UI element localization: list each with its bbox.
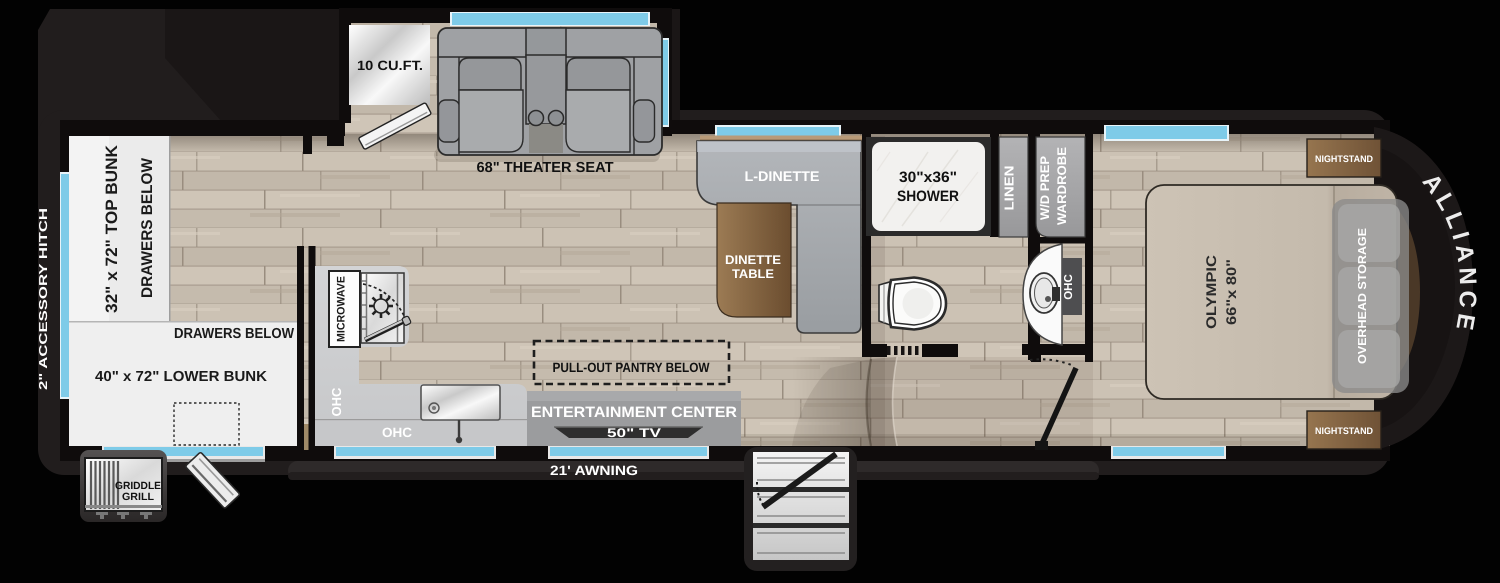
- svg-text:L-DINETTE: L-DINETTE: [745, 168, 820, 184]
- svg-text:40" x 72" LOWER BUNK: 40" x 72" LOWER BUNK: [95, 369, 268, 385]
- svg-text:21' AWNING: 21' AWNING: [550, 463, 638, 478]
- svg-text:LINEN: LINEN: [1002, 166, 1017, 211]
- svg-text:DRAWERS BELOW: DRAWERS BELOW: [174, 326, 294, 342]
- svg-text:NIGHTSTAND: NIGHTSTAND: [1315, 154, 1373, 165]
- svg-text:NIGHTSTAND: NIGHTSTAND: [1315, 426, 1373, 437]
- svg-text:WARDROBE: WARDROBE: [1055, 147, 1069, 225]
- svg-text:OVERHEAD STORAGE: OVERHEAD STORAGE: [1357, 228, 1369, 364]
- svg-text:ENTERTAINMENT CENTER: ENTERTAINMENT CENTER: [531, 404, 737, 421]
- svg-text:DRAWERS BELOW: DRAWERS BELOW: [139, 158, 156, 298]
- svg-text:PULL-OUT PANTRY BELOW: PULL-OUT PANTRY BELOW: [553, 360, 710, 375]
- svg-text:DINETTE: DINETTE: [725, 253, 781, 267]
- svg-text:2" ACCESSORY HITCH: 2" ACCESSORY HITCH: [38, 208, 50, 390]
- svg-text:10 CU.FT.: 10 CU.FT.: [357, 58, 423, 73]
- svg-text:32" x 72" TOP BUNK: 32" x 72" TOP BUNK: [103, 145, 121, 313]
- svg-text:TABLE: TABLE: [732, 267, 774, 281]
- svg-text:SHOWER: SHOWER: [897, 188, 959, 205]
- svg-text:OHC: OHC: [329, 387, 344, 417]
- svg-text:OHC: OHC: [382, 425, 412, 440]
- svg-text:30"x36": 30"x36": [899, 169, 957, 186]
- svg-text:50" TV: 50" TV: [607, 426, 662, 440]
- svg-text:OLYMPIC: OLYMPIC: [1203, 255, 1219, 329]
- svg-text:68" THEATER SEAT: 68" THEATER SEAT: [477, 160, 614, 176]
- svg-text:GRILL: GRILL: [122, 491, 155, 503]
- svg-text:MICROWAVE: MICROWAVE: [336, 276, 348, 342]
- svg-text:W/D PREP: W/D PREP: [1038, 156, 1052, 220]
- svg-text:OHC: OHC: [1063, 274, 1075, 300]
- svg-text:66"x 80": 66"x 80": [1223, 259, 1239, 325]
